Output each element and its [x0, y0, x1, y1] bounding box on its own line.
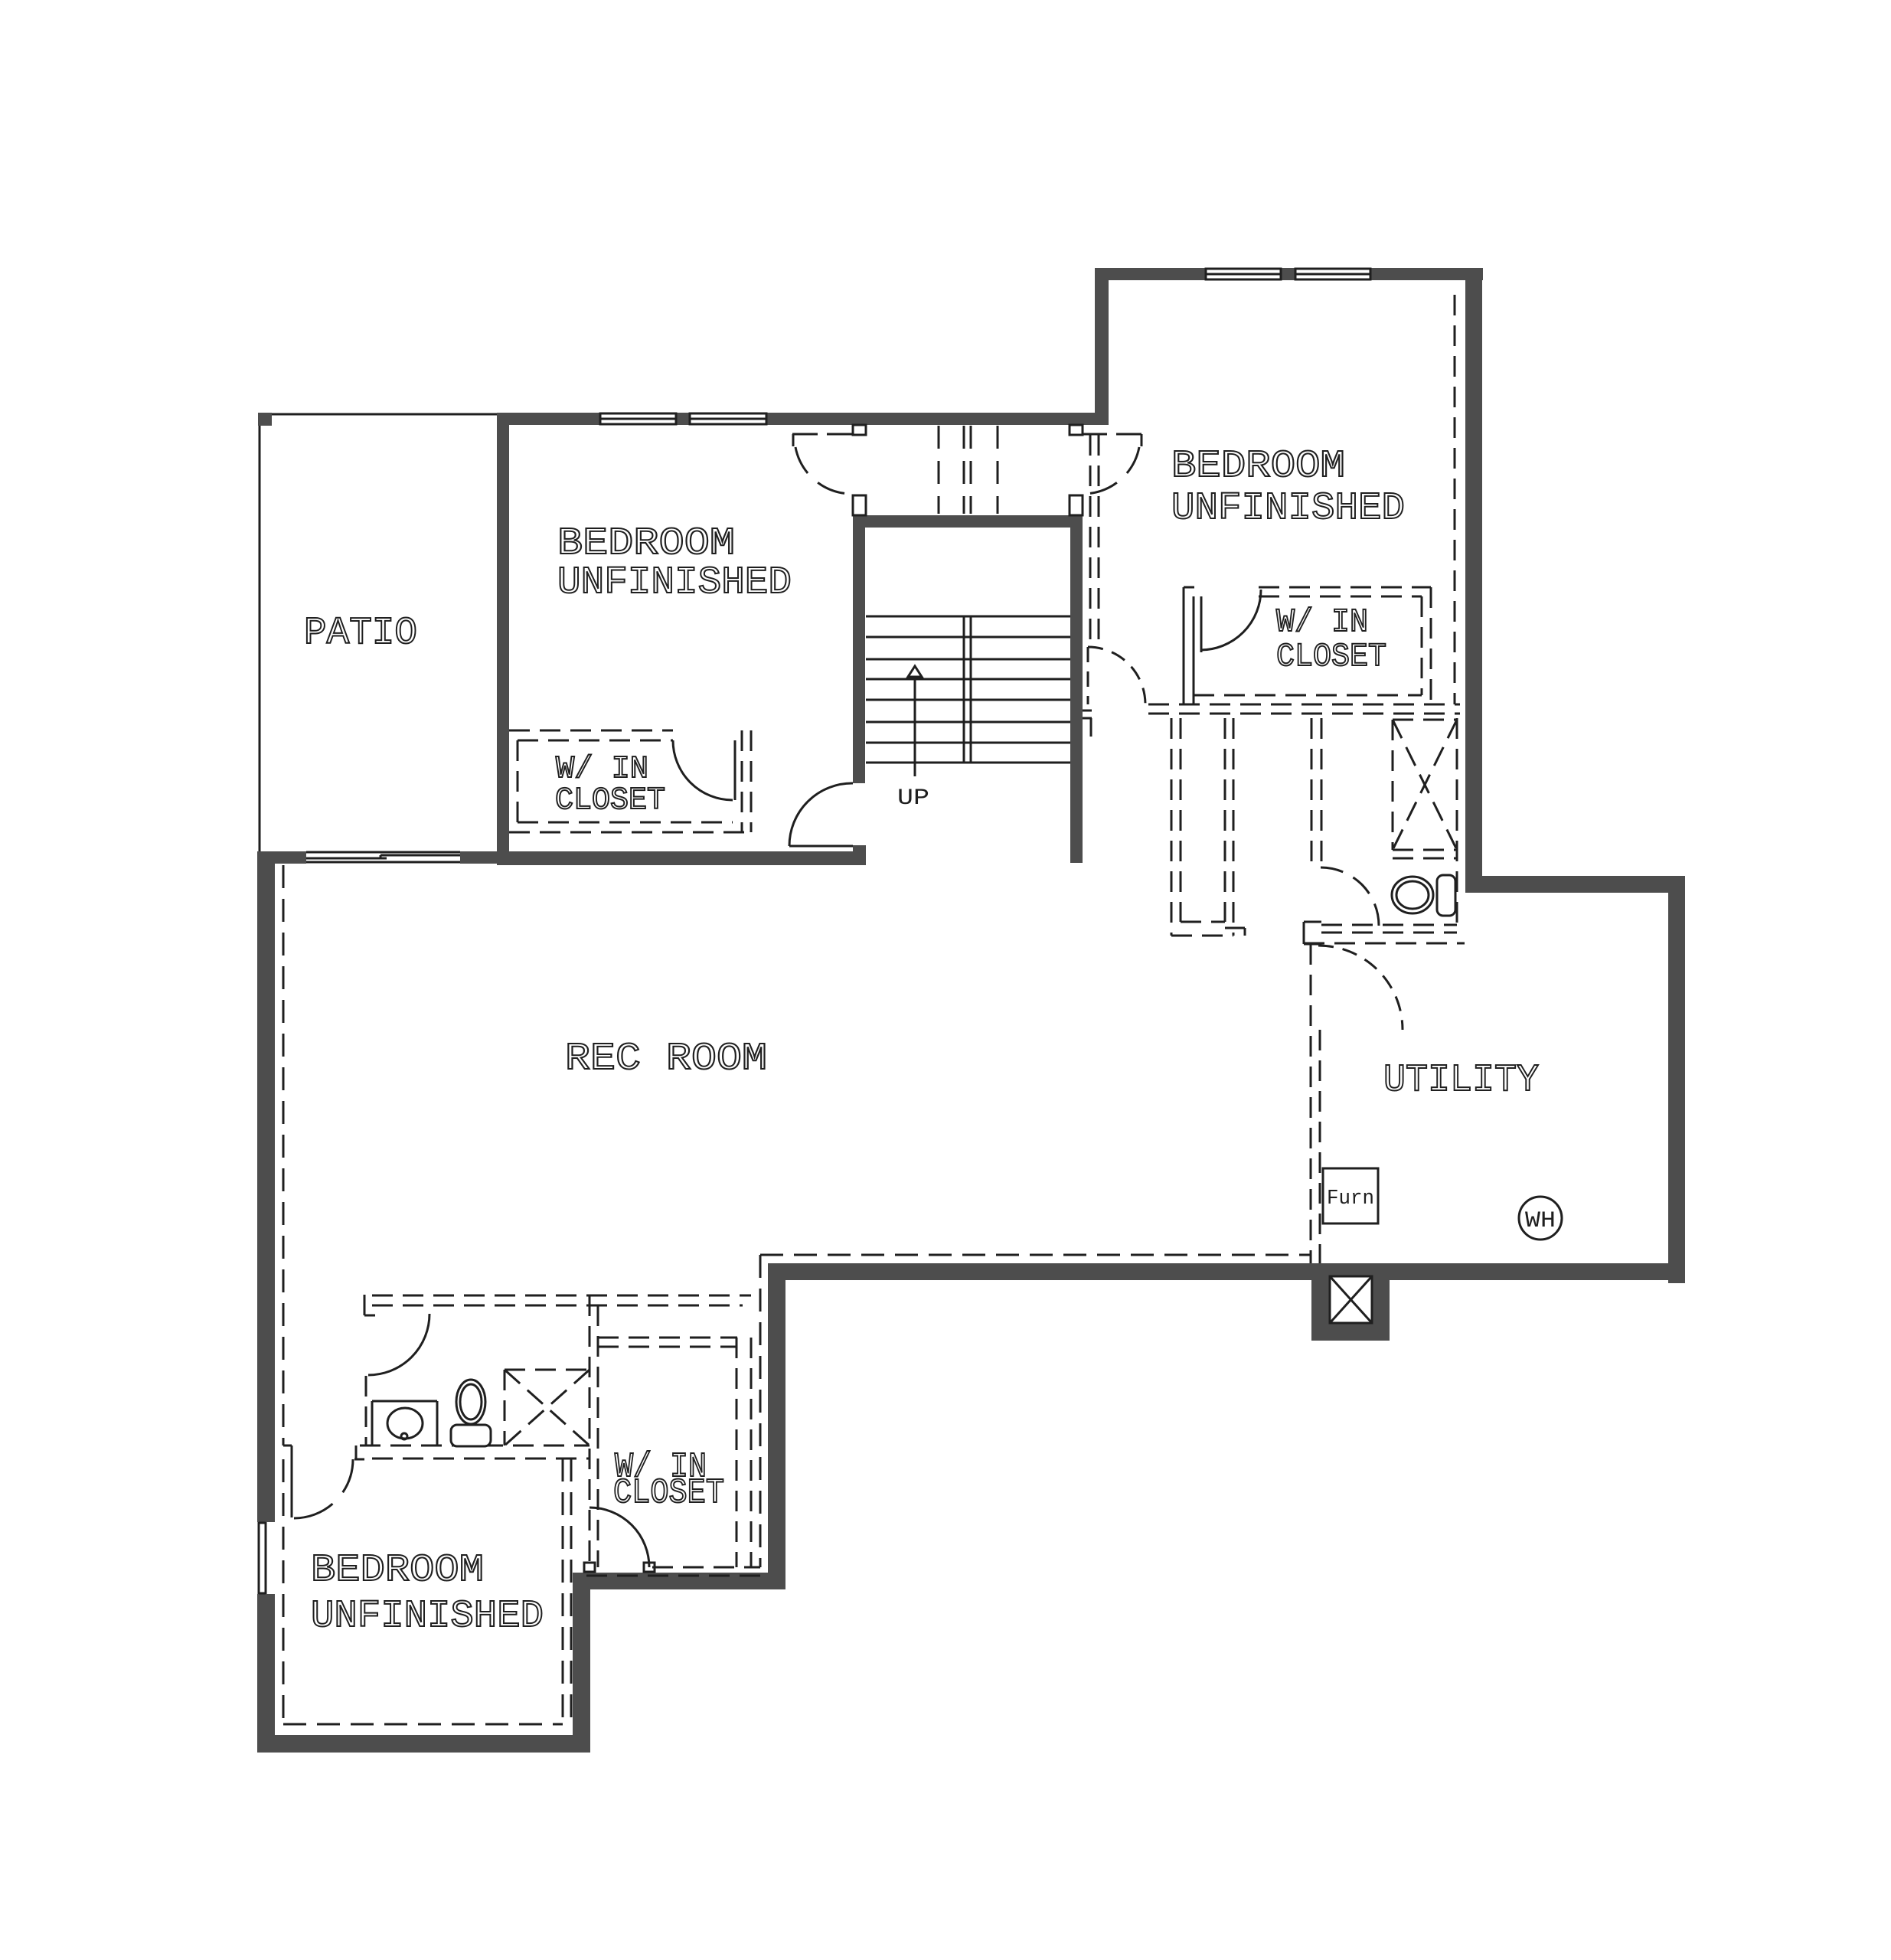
- svg-text:W/ IN: W/ IN: [556, 752, 648, 787]
- svg-text:W/ IN: W/ IN: [1276, 603, 1368, 641]
- svg-text:Furn: Furn: [1327, 1187, 1374, 1210]
- svg-text:BEDROOM: BEDROOM: [557, 522, 735, 566]
- svg-text:WH: WH: [1525, 1208, 1556, 1234]
- svg-text:PATIO: PATIO: [304, 612, 417, 655]
- svg-text:CLOSET: CLOSET: [613, 1474, 724, 1513]
- svg-text:BEDROOM: BEDROOM: [311, 1549, 484, 1592]
- svg-text:UP: UP: [897, 786, 929, 812]
- svg-text:UNFINISHED: UNFINISHED: [557, 561, 792, 605]
- svg-text:UNFINISHED: UNFINISHED: [311, 1595, 544, 1638]
- svg-text:UTILITY: UTILITY: [1383, 1059, 1539, 1102]
- svg-text:REC ROOM: REC ROOM: [565, 1037, 767, 1081]
- svg-text:BEDROOM: BEDROOM: [1171, 445, 1345, 488]
- svg-text:CLOSET: CLOSET: [555, 783, 665, 818]
- svg-text:CLOSET: CLOSET: [1276, 638, 1386, 675]
- svg-text:UNFINISHED: UNFINISHED: [1171, 487, 1405, 531]
